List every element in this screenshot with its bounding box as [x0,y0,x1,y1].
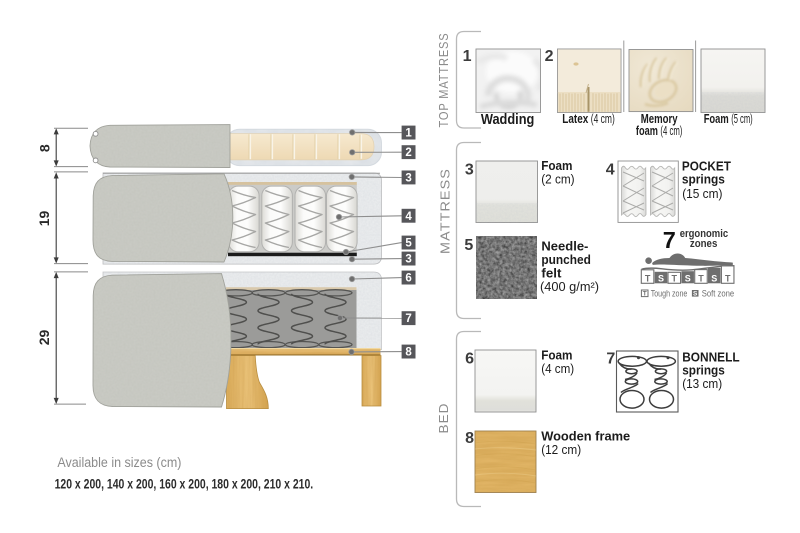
svg-text:Foam: Foam [704,112,729,126]
svg-text:foam: foam [636,124,658,138]
svg-text:(2 cm): (2 cm) [541,172,574,187]
svg-text:5: 5 [405,238,412,250]
svg-text:(12 cm): (12 cm) [541,442,581,457]
svg-text:(4 cm): (4 cm) [541,361,574,376]
svg-text:Wadding: Wadding [481,111,535,128]
svg-text:(13 cm): (13 cm) [682,376,722,391]
svg-text:T: T [672,273,678,283]
svg-text:6: 6 [465,351,474,368]
svg-text:(4 cm): (4 cm) [660,124,682,138]
svg-text:S: S [693,291,698,298]
svg-text:T: T [698,273,704,283]
svg-text:S: S [658,273,664,283]
svg-text:4: 4 [405,211,412,223]
svg-text:(5 cm): (5 cm) [731,112,753,126]
svg-text:8: 8 [37,144,53,152]
svg-text:19: 19 [36,211,52,227]
svg-text:(400 g/m²): (400 g/m²) [540,279,599,294]
svg-text:7: 7 [405,313,411,325]
svg-text:S: S [711,273,717,283]
svg-text:T: T [645,273,651,283]
svg-text:2: 2 [545,48,554,65]
svg-text:T: T [725,273,731,283]
svg-text:(4 cm): (4 cm) [591,112,615,126]
svg-text:8: 8 [465,430,474,447]
svg-text:(15 cm): (15 cm) [682,186,722,201]
svg-text:1: 1 [463,48,472,65]
svg-text:3: 3 [405,173,411,185]
svg-text:7: 7 [663,227,676,253]
svg-text:3: 3 [465,161,474,178]
svg-text:TOP MATTRESS: TOP MATTRESS [436,33,451,128]
svg-text:29: 29 [36,330,52,346]
svg-text:Available in sizes (cm): Available in sizes (cm) [57,455,181,470]
svg-text:8: 8 [405,347,412,359]
svg-text:3: 3 [405,254,411,266]
svg-text:Soft zone: Soft zone [702,288,735,298]
svg-text:1: 1 [405,128,412,140]
svg-text:BED: BED [436,403,451,434]
svg-text:7: 7 [606,351,615,368]
svg-text:120 x 200, 140 x 200, 160 x 20: 120 x 200, 140 x 200, 160 x 200, 180 x 2… [55,475,314,491]
svg-text:6: 6 [405,273,411,285]
svg-text:MATTRESS: MATTRESS [437,168,452,254]
svg-text:5: 5 [464,237,473,254]
svg-text:4: 4 [606,161,615,178]
svg-text:2: 2 [405,147,411,159]
svg-text:Latex: Latex [562,112,588,126]
svg-text:springs: springs [682,172,725,187]
svg-text:S: S [685,273,691,283]
svg-text:T: T [643,291,647,298]
svg-text:Tough zone: Tough zone [651,288,688,298]
svg-text:zones: zones [690,238,718,250]
